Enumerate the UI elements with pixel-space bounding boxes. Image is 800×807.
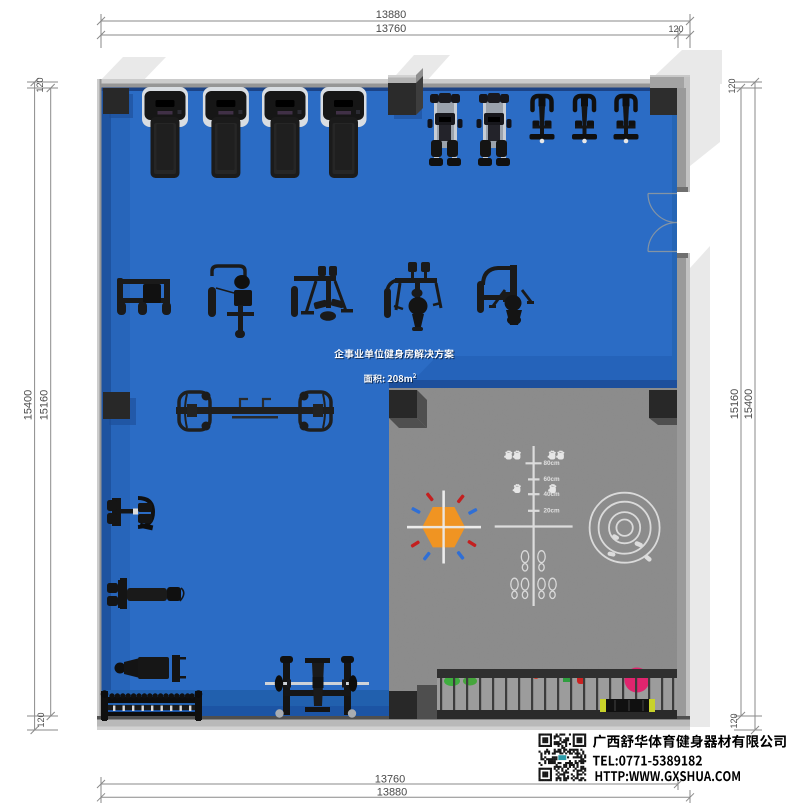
svg-text:13760: 13760 [375, 774, 406, 786]
svg-text:15400: 15400 [743, 389, 755, 420]
svg-text:80cm: 80cm [544, 460, 561, 467]
svg-text:20cm: 20cm [544, 508, 561, 515]
svg-text:120: 120 [668, 24, 683, 34]
svg-text:15160: 15160 [729, 389, 741, 420]
svg-text:15400: 15400 [23, 390, 35, 421]
svg-text:13880: 13880 [377, 787, 408, 799]
svg-text:15160: 15160 [39, 390, 51, 421]
svg-text:120: 120 [729, 713, 739, 728]
svg-text:120: 120 [35, 77, 45, 92]
svg-text:60cm: 60cm [544, 476, 561, 483]
svg-text:120: 120 [36, 712, 46, 727]
svg-text:13880: 13880 [376, 9, 407, 21]
svg-text:13760: 13760 [376, 23, 407, 35]
svg-text:120: 120 [727, 78, 737, 93]
